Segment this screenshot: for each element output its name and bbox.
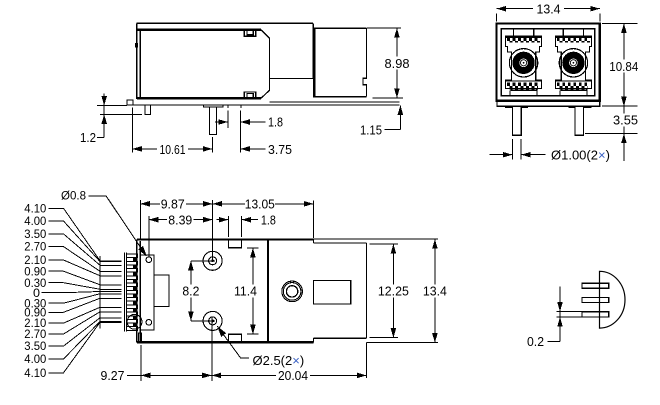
svg-text:13.05: 13.05: [245, 197, 275, 211]
svg-text:11.4: 11.4: [234, 285, 257, 299]
svg-text:10.61: 10.61: [160, 143, 186, 157]
svg-text:8.98: 8.98: [385, 57, 410, 71]
svg-text:9.87: 9.87: [161, 197, 185, 211]
svg-text:4.00: 4.00: [24, 352, 46, 366]
svg-text:8.2: 8.2: [182, 285, 199, 299]
svg-text:Ø0.8: Ø0.8: [61, 191, 86, 203]
svg-text:1.2: 1.2: [80, 131, 96, 145]
svg-text:3.50: 3.50: [24, 339, 46, 353]
svg-text:13.4: 13.4: [423, 285, 447, 299]
svg-text:4.00: 4.00: [24, 214, 46, 228]
svg-text:3.55: 3.55: [613, 114, 638, 128]
svg-text:Ø2.5(2×): Ø2.5(2×): [253, 353, 305, 368]
svg-text:13.4: 13.4: [537, 2, 561, 16]
svg-text:10.84: 10.84: [609, 60, 638, 74]
svg-text:1.8: 1.8: [261, 213, 276, 227]
svg-text:3.75: 3.75: [268, 143, 292, 157]
svg-text:9.27: 9.27: [101, 369, 125, 383]
svg-text:4.10: 4.10: [24, 366, 46, 380]
svg-text:0.2: 0.2: [527, 335, 544, 349]
svg-text:1.15: 1.15: [360, 124, 382, 138]
svg-text:20.04: 20.04: [278, 369, 308, 383]
svg-text:12.25: 12.25: [378, 285, 409, 299]
svg-text:2.70: 2.70: [24, 240, 46, 254]
svg-text:Ø1.00(2×): Ø1.00(2×): [551, 147, 610, 162]
svg-text:8.39: 8.39: [168, 213, 192, 227]
svg-text:1.8: 1.8: [268, 115, 283, 129]
